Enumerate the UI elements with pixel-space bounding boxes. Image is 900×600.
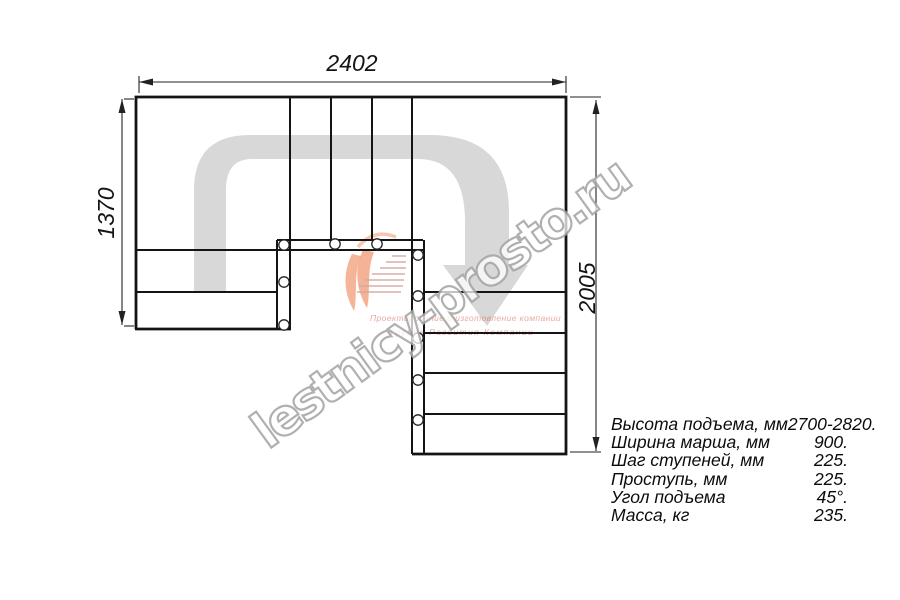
dim-label-right: 2005 — [574, 262, 600, 314]
spec-value: 235. — [814, 506, 848, 524]
bolt-circle — [279, 320, 289, 330]
dim-label-left: 1370 — [93, 187, 119, 238]
stair-plan-page: Проектирование и изготовление компании Г… — [0, 0, 900, 600]
spec-table: Высота подъема, мм 2700-2820. Ширина мар… — [611, 415, 848, 524]
spec-row: Высота подъема, мм 2700-2820. — [611, 415, 848, 433]
spec-label: Ширина марша, мм — [611, 433, 770, 451]
bolt-circle — [372, 239, 382, 249]
arrowhead — [593, 100, 600, 114]
spec-row: Ширина марша, мм 900. — [611, 433, 848, 451]
spec-row: Угол подъема 45°. — [611, 488, 848, 506]
spec-value: 225. — [814, 451, 848, 469]
spec-label: Масса, кг — [611, 506, 689, 524]
bolt-circle — [279, 240, 289, 250]
spec-row: Масса, кг 235. — [611, 506, 848, 524]
bolt-circle — [330, 239, 340, 249]
bolt-circle — [413, 415, 423, 425]
spec-value: 900. — [814, 433, 848, 451]
spec-value: 225. — [814, 470, 848, 488]
arrowhead — [119, 311, 126, 325]
arrowhead — [139, 79, 153, 86]
dimension-left — [119, 99, 135, 326]
spec-label: Высота подъема, мм — [611, 415, 788, 433]
dim-label-top: 2402 — [325, 50, 377, 76]
spec-label: Угол подъема — [611, 488, 726, 506]
arrowhead — [552, 79, 566, 86]
spec-label: Шаг ступеней, мм — [611, 451, 764, 469]
bolt-circle — [413, 375, 423, 385]
bolt-circle — [279, 277, 289, 287]
arrowhead — [119, 99, 126, 113]
spec-value: 2700-2820. — [788, 415, 877, 433]
bolt-circle — [413, 250, 423, 260]
spec-label: Проступь, мм — [611, 470, 727, 488]
spec-row: Шаг ступеней, мм 225. — [611, 451, 848, 469]
spec-value: 45°. — [817, 488, 848, 506]
dimension-top — [139, 76, 566, 93]
spec-row: Проступь, мм 225. — [611, 470, 848, 488]
arrowhead — [593, 437, 600, 451]
